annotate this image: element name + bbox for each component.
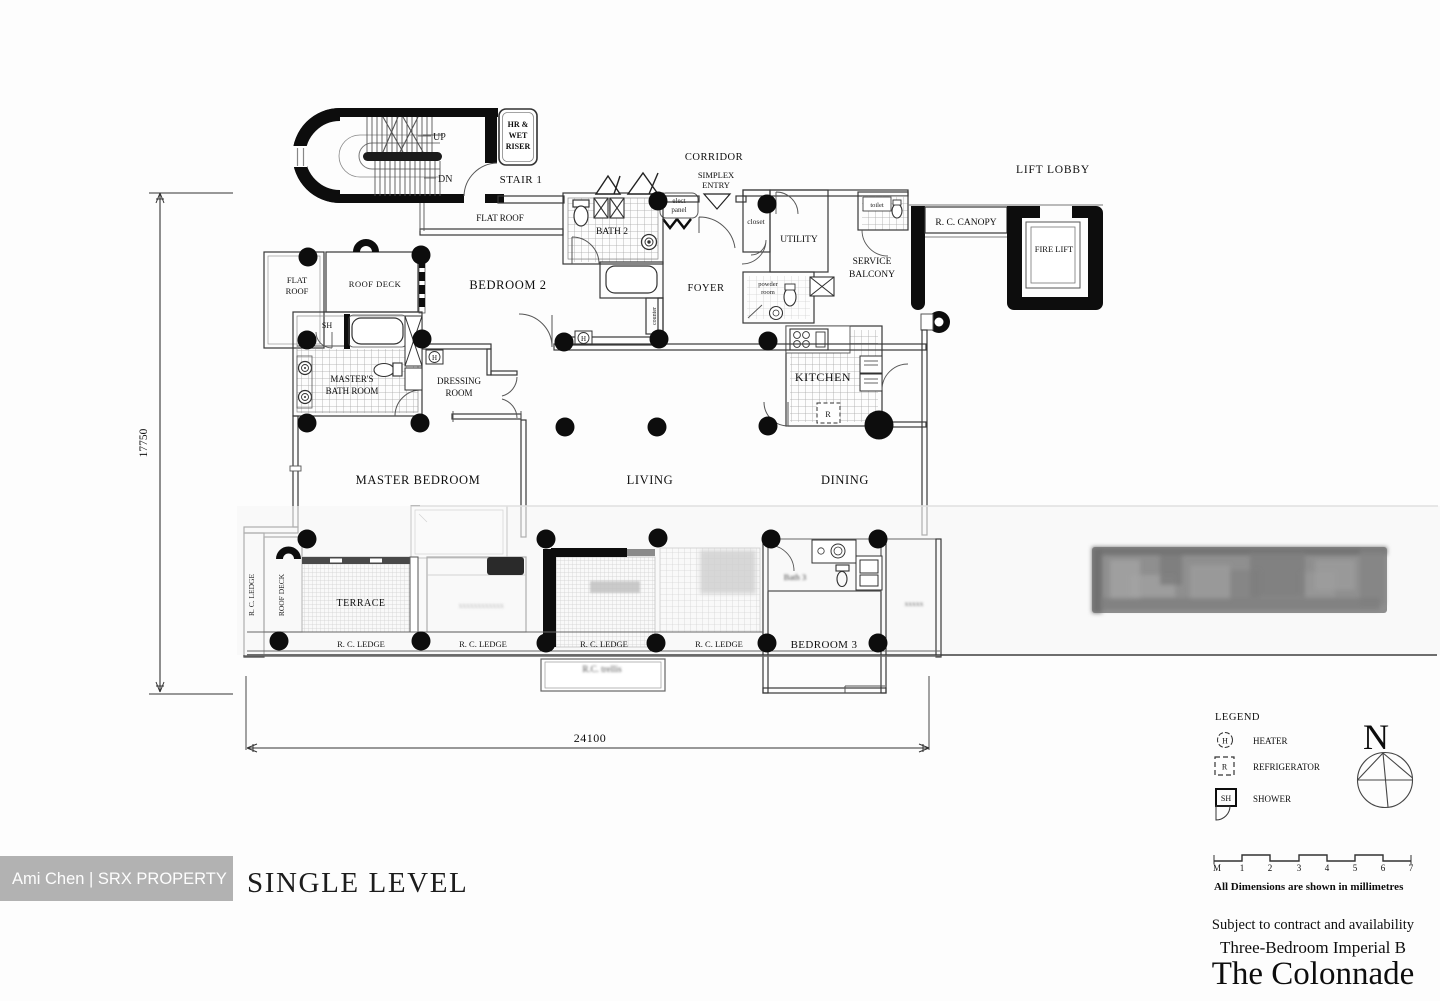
svg-text:Subject to contract and availa: Subject to contract and availability [1212, 917, 1415, 933]
svg-text:7: 7 [1409, 863, 1414, 873]
svg-text:ROOF: ROOF [286, 286, 309, 296]
svg-text:BEDROOM 3: BEDROOM 3 [791, 639, 858, 651]
svg-text:4: 4 [1325, 863, 1330, 873]
svg-text:ROOF DECK: ROOF DECK [277, 573, 286, 616]
svg-text:WET: WET [509, 131, 528, 140]
svg-text:17750: 17750 [138, 428, 150, 457]
svg-text:Ami Chen | SRX PROPERTY: Ami Chen | SRX PROPERTY [12, 870, 227, 888]
svg-text:counter: counter [652, 307, 658, 325]
svg-text:UP: UP [433, 132, 446, 143]
svg-text:H: H [432, 354, 437, 362]
svg-text:R. C. CANOPY: R. C. CANOPY [935, 218, 996, 228]
svg-text:FIRE LIFT: FIRE LIFT [1035, 244, 1074, 254]
svg-text:The Colonnade: The Colonnade [1212, 956, 1415, 992]
svg-text:SERVICE: SERVICE [853, 257, 892, 267]
svg-text:DRESSING: DRESSING [437, 376, 482, 386]
svg-text:REFRIGERATOR: REFRIGERATOR [1253, 762, 1320, 772]
svg-text:SHOWER: SHOWER [1253, 794, 1291, 804]
svg-text:toilet: toilet [870, 202, 884, 209]
svg-text:closet: closet [747, 217, 765, 226]
svg-text:KITCHEN: KITCHEN [795, 370, 851, 384]
svg-text:24100: 24100 [574, 731, 607, 745]
svg-text:ROOF DECK: ROOF DECK [349, 279, 402, 289]
svg-text:MASTER BEDROOM: MASTER BEDROOM [356, 473, 481, 487]
svg-text:R. C. LEDGE: R. C. LEDGE [580, 639, 628, 649]
svg-text:FLAT: FLAT [287, 275, 308, 285]
svg-text:FLAT ROOF: FLAT ROOF [476, 213, 524, 223]
svg-text:room: room [761, 289, 775, 296]
svg-text:3: 3 [1297, 863, 1302, 873]
svg-text:R.C. trellis: R.C. trellis [582, 664, 622, 674]
svg-text:R. C. LEDGE: R. C. LEDGE [247, 574, 256, 617]
svg-text:ROOM: ROOM [445, 388, 472, 398]
svg-text:TERRACE: TERRACE [336, 598, 385, 609]
svg-text:BALCONY: BALCONY [849, 270, 895, 280]
svg-text:H: H [581, 335, 586, 343]
svg-text:SINGLE LEVEL: SINGLE LEVEL [247, 867, 468, 899]
svg-text:H: H [1222, 737, 1228, 746]
svg-text:SIMPLEX: SIMPLEX [698, 170, 734, 180]
svg-text:1: 1 [1240, 863, 1245, 873]
svg-text:BATH 2: BATH 2 [596, 227, 628, 237]
svg-text:R. C. LEDGE: R. C. LEDGE [459, 639, 507, 649]
svg-text:powder: powder [758, 281, 778, 288]
svg-text:SH: SH [322, 321, 332, 330]
svg-text:BEDROOM 2: BEDROOM 2 [469, 278, 546, 292]
svg-text:DINING: DINING [821, 473, 869, 487]
svg-text:xxxxx: xxxxx [905, 599, 924, 608]
svg-text:5: 5 [1353, 863, 1358, 873]
svg-text:CORRIDOR: CORRIDOR [685, 152, 743, 163]
svg-text:6: 6 [1381, 863, 1386, 873]
svg-text:LEGEND: LEGEND [1215, 712, 1260, 723]
svg-text:R. C. LEDGE: R. C. LEDGE [695, 639, 743, 649]
svg-text:LIVING: LIVING [627, 473, 674, 487]
svg-text:R: R [1222, 763, 1228, 772]
svg-text:R: R [825, 410, 831, 419]
svg-text:HR &: HR & [508, 120, 529, 129]
svg-text:FOYER: FOYER [688, 283, 725, 294]
svg-text:HEATER: HEATER [1253, 736, 1288, 746]
svg-text:R. C. LEDGE: R. C. LEDGE [337, 639, 385, 649]
svg-text:ENTRY: ENTRY [702, 180, 730, 190]
svg-text:MASTER'S: MASTER'S [330, 374, 373, 384]
svg-text:RISER: RISER [506, 142, 531, 151]
svg-text:DN: DN [438, 174, 452, 185]
svg-text:BATH ROOM: BATH ROOM [326, 386, 379, 396]
svg-text:SH: SH [1221, 794, 1231, 803]
svg-text:LIFT LOBBY: LIFT LOBBY [1016, 164, 1090, 176]
svg-text:elect: elect [672, 197, 685, 205]
svg-text:panel: panel [671, 206, 686, 214]
svg-text:N: N [1363, 717, 1389, 757]
svg-text:STAIR 1: STAIR 1 [500, 174, 543, 186]
svg-text:Three-Bedroom Imperial B: Three-Bedroom Imperial B [1220, 938, 1406, 957]
svg-text:2: 2 [1268, 863, 1273, 873]
svg-text:M: M [1213, 863, 1221, 873]
svg-text:UTILITY: UTILITY [780, 235, 818, 245]
svg-text:All Dimensions are shown in mi: All Dimensions are shown in millimetres [1214, 881, 1404, 893]
svg-text:Bath 3: Bath 3 [784, 572, 806, 582]
